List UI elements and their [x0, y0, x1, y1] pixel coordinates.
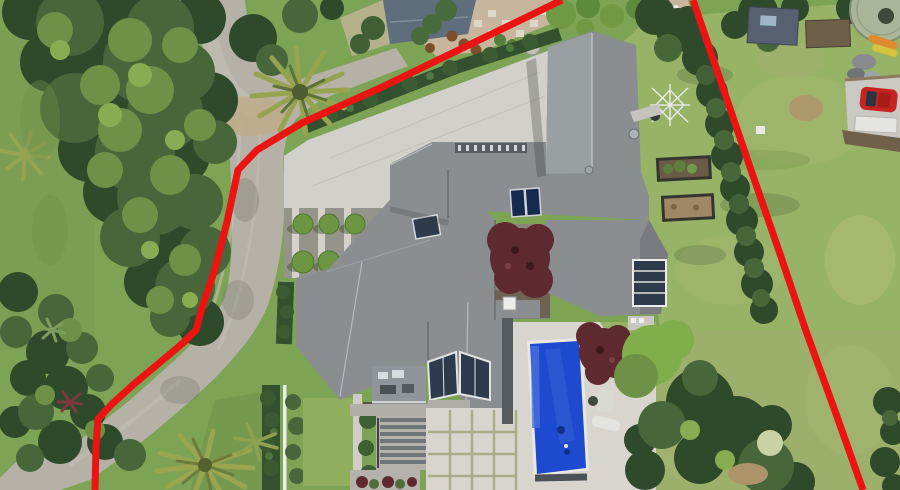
flowering-shrub: [757, 430, 783, 456]
raised-garden-bed-soil: [662, 195, 713, 221]
side-lawn-panel: [303, 398, 353, 486]
chimney-cowl: [629, 129, 639, 139]
conservatory-glass-roof: [633, 260, 666, 306]
lawn-dirt-patch: [789, 95, 823, 121]
fire-bowl: [588, 396, 598, 406]
chimney: [503, 297, 516, 310]
japanese-maple-courtyard-tree: [487, 222, 554, 298]
roof-vent: [585, 166, 593, 174]
wooden-shed: [806, 19, 851, 48]
red-car: [859, 86, 898, 113]
aerial-photo-canvas: [0, 0, 900, 490]
house-wall-edge: [502, 318, 513, 424]
pool-step-ledge: [531, 346, 540, 428]
aerial-property-photo: [0, 0, 900, 490]
bay-windows: [428, 352, 490, 400]
bare-dirt-patch: [728, 463, 768, 485]
raised-garden-bed-planted: [657, 157, 710, 181]
white-trailer: [855, 116, 898, 133]
solar-panels: [510, 188, 541, 217]
balcony-deck: [372, 366, 426, 404]
pool-drain-strip: [535, 474, 587, 482]
pool-side-table: [597, 389, 615, 413]
neighbor-shed: [747, 7, 799, 46]
terracotta-pot: [447, 31, 458, 42]
